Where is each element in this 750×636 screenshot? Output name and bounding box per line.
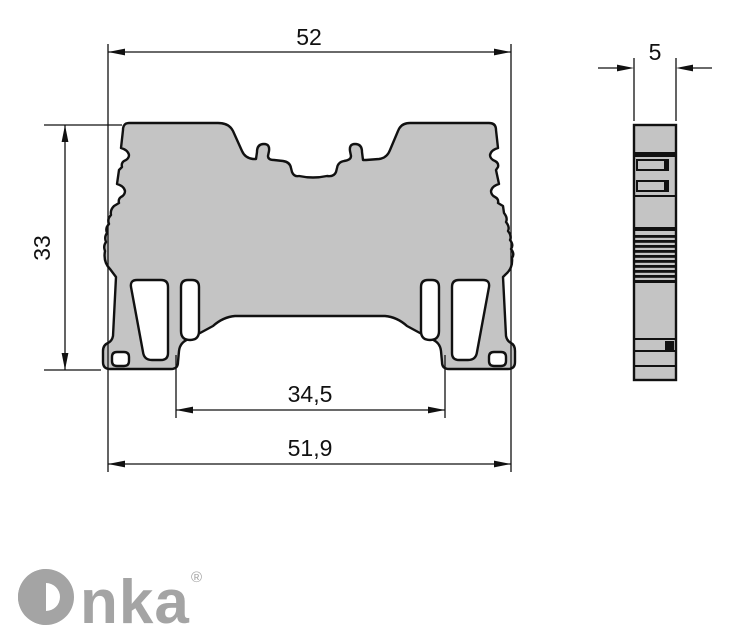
- right-foot-hook-notch: [489, 352, 506, 366]
- side-groove-1-end: [664, 160, 669, 170]
- arrow-right-icon: [428, 407, 445, 414]
- arrow-right-icon: [494, 461, 511, 468]
- drawing-svg: 52 33 34,5 51,9: [0, 0, 750, 636]
- left-foot-narrow-slot: [181, 280, 199, 340]
- dimension-height: 33: [29, 125, 68, 370]
- technical-drawing-canvas: 52 33 34,5 51,9: [0, 0, 750, 636]
- arrow-left-icon: [676, 65, 693, 72]
- arrow-left-icon: [176, 407, 193, 414]
- side-latch-square: [665, 341, 674, 350]
- front-view: 52 33 34,5 51,9: [29, 24, 515, 472]
- dim-value-height: 33: [29, 235, 55, 261]
- arrow-left-icon: [108, 461, 125, 468]
- dim-value-rail-slot: 34,5: [288, 381, 333, 407]
- arrow-up-icon: [62, 125, 69, 142]
- dimension-width-top: 52: [108, 24, 511, 55]
- dimension-rail-slot: 34,5: [176, 381, 445, 413]
- arrow-down-icon: [62, 353, 69, 370]
- side-view: 5: [598, 39, 712, 380]
- arrow-right-icon: [494, 49, 511, 56]
- logo-o-half: [18, 569, 46, 625]
- dim-value-width-bottom: 51,9: [288, 435, 333, 461]
- dim-value-thickness: 5: [649, 39, 662, 65]
- arrow-right-icon: [617, 65, 634, 72]
- dimension-thickness: 5: [598, 39, 712, 71]
- side-groove-2-end: [664, 181, 669, 191]
- side-groove-1: [637, 160, 668, 170]
- dimension-width-bottom: 51,9: [108, 435, 511, 467]
- logo-letters: nka: [80, 568, 190, 636]
- side-band-solid-1: [634, 152, 676, 157]
- onka-logo: nka ®: [18, 568, 202, 636]
- right-foot-narrow-slot: [421, 280, 439, 340]
- dim-value-width-top: 52: [296, 24, 322, 50]
- arrow-left-icon: [108, 49, 125, 56]
- side-band-solid-2: [634, 227, 676, 231]
- left-foot-hook-notch: [112, 352, 129, 366]
- side-groove-2: [637, 181, 668, 191]
- registered-mark: ®: [191, 569, 202, 586]
